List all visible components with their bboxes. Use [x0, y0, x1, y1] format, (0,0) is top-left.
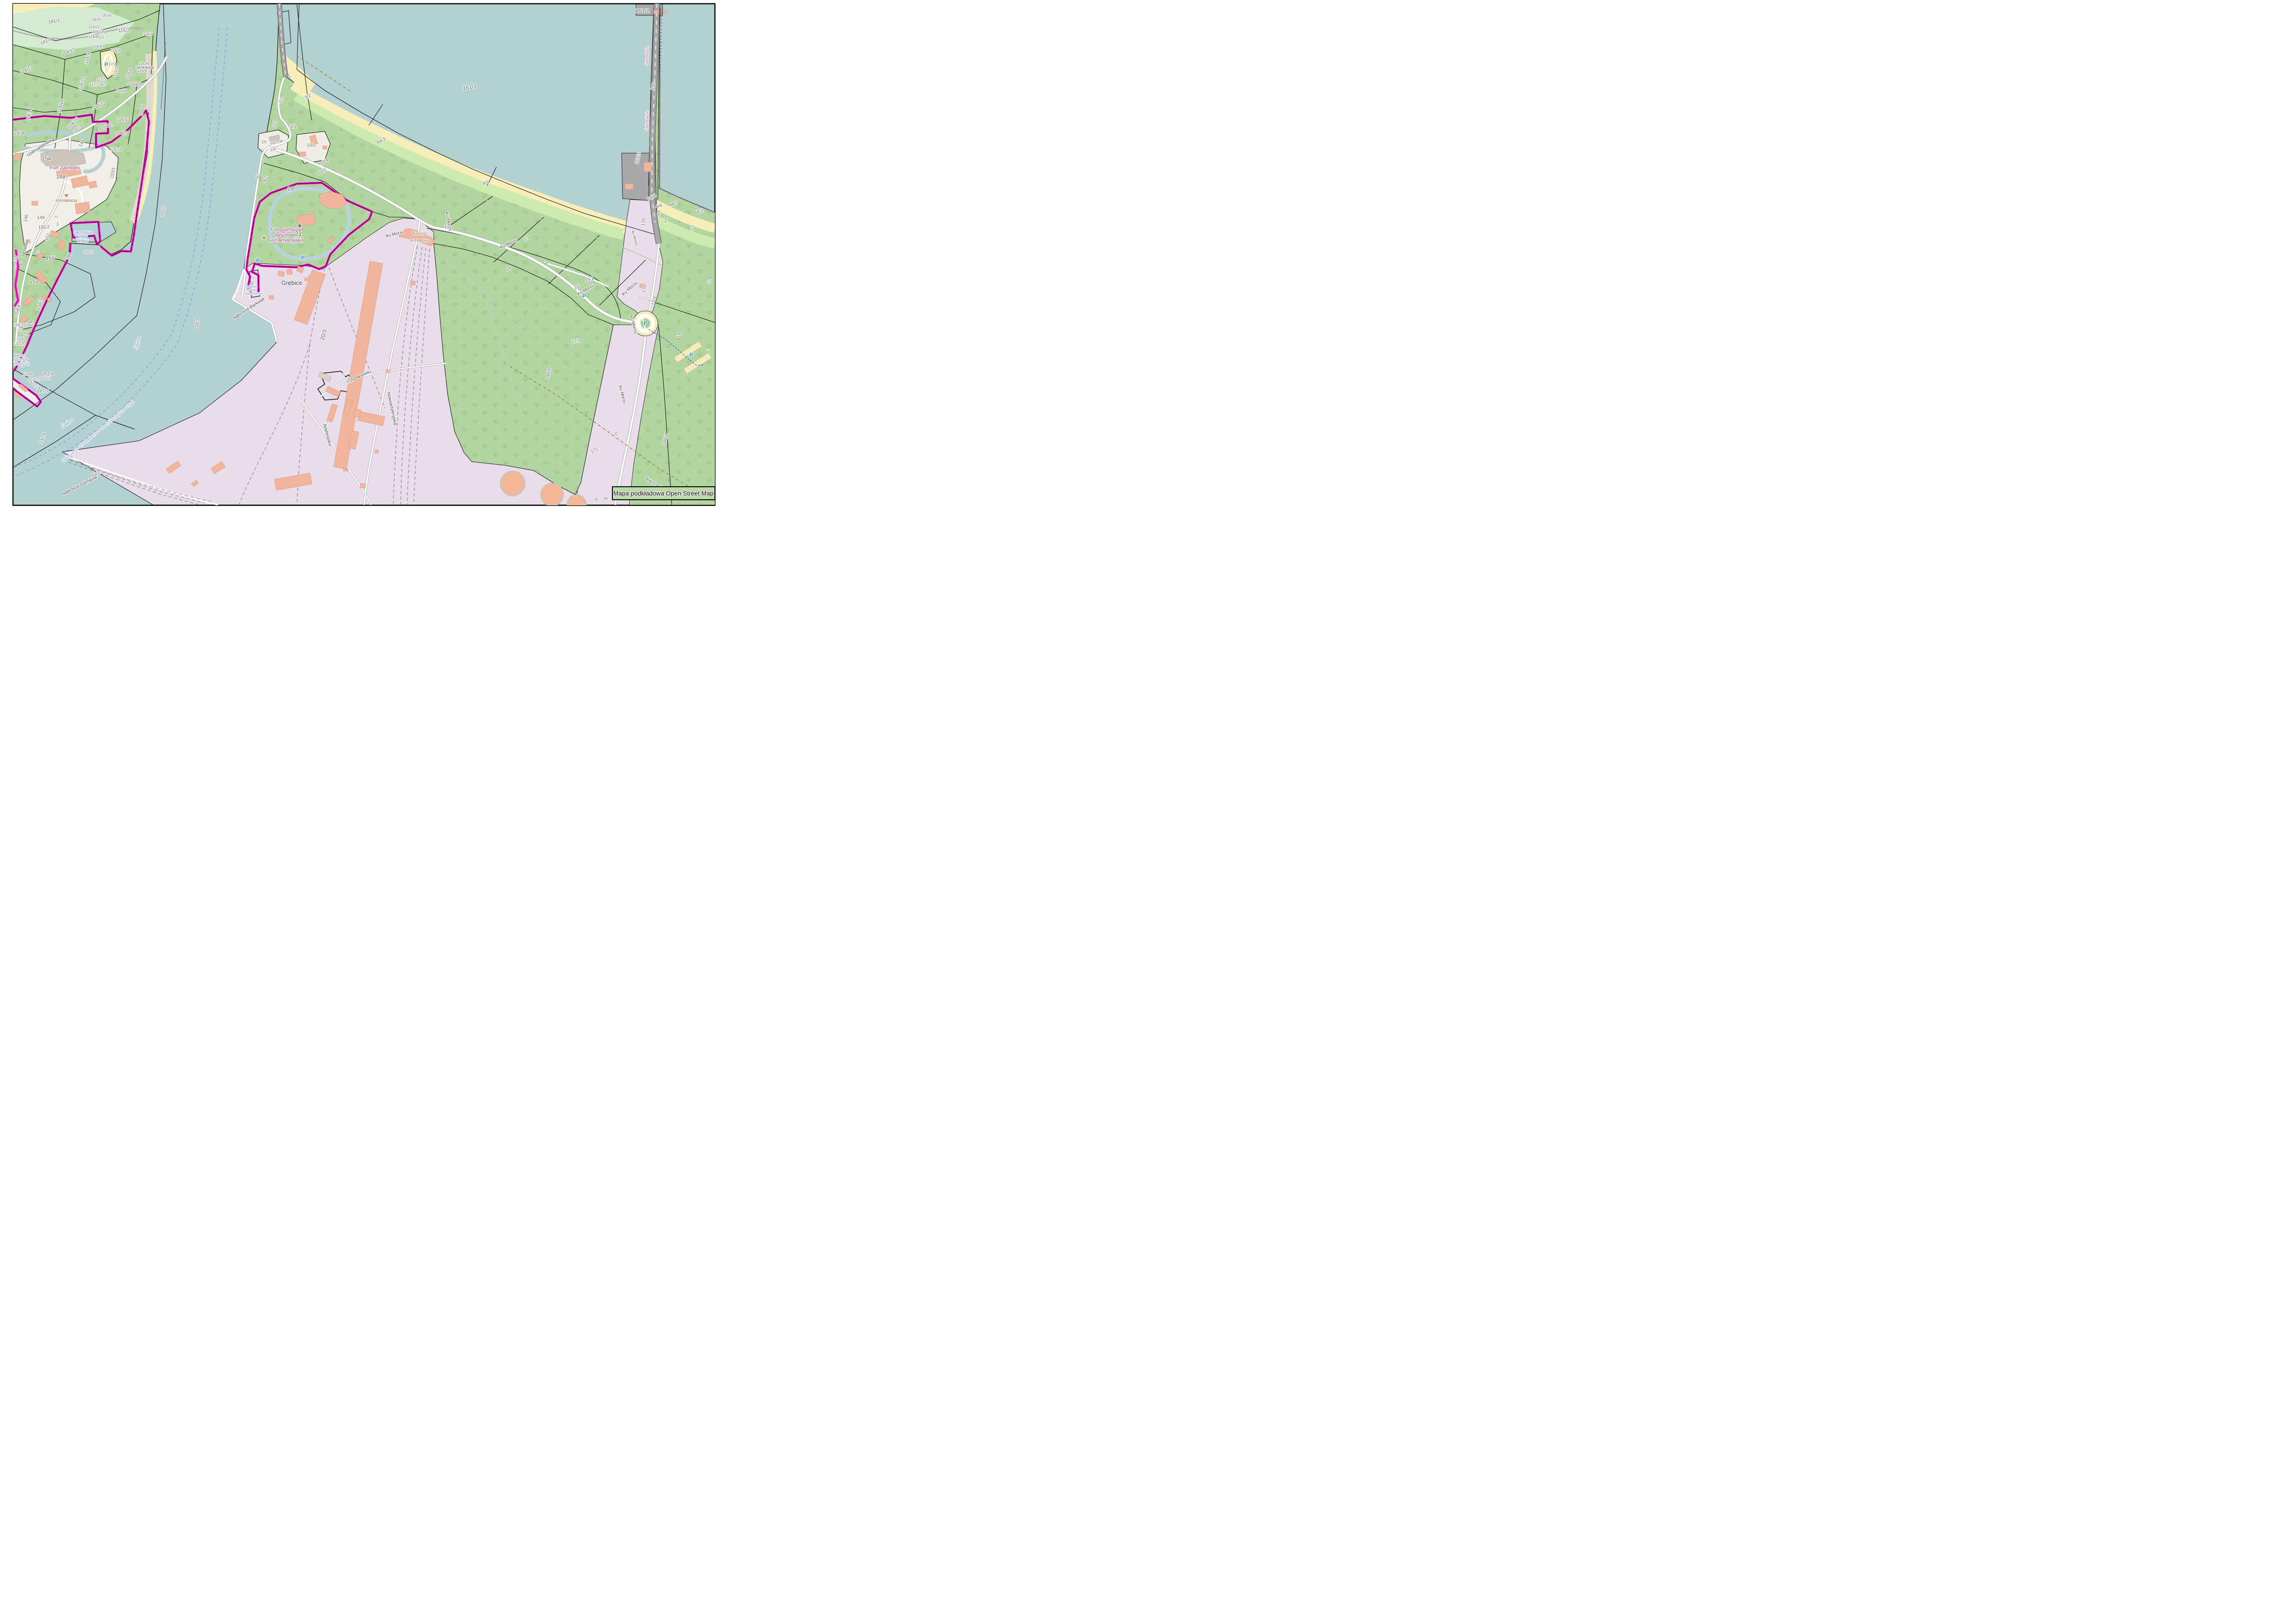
- map-label: Fort Zachodni: [50, 165, 80, 171]
- map-label: Latarnia: [245, 285, 257, 289]
- map-label: Świnoujście: [245, 291, 262, 296]
- map-label: 123/6: [23, 372, 33, 376]
- map-icon-Ⅲ: Ⅲ: [298, 224, 301, 228]
- map-label: 10/2: [307, 143, 316, 148]
- map-icon-Ψ: Ψ: [64, 193, 68, 199]
- map-label: 4: [37, 250, 39, 254]
- map-label: 60: [604, 496, 608, 501]
- map-label: 148: [56, 174, 65, 180]
- map-canvas[interactable]: 181/1181/6181/5114/22114/18114/8115116/2…: [0, 0, 719, 509]
- map-label: 150: [39, 225, 46, 230]
- map-icon-P: P: [104, 61, 108, 68]
- map-label: 114/22: [88, 25, 100, 29]
- map-label: 149: [37, 215, 45, 220]
- attribution-text: Mapa podkładowa Open Street Map: [613, 490, 714, 497]
- map-label: 116/14: [110, 147, 122, 152]
- map-label: 3/1: [290, 124, 296, 129]
- map-label: 161/2: [636, 7, 650, 14]
- map-label: 114/18: [92, 29, 104, 34]
- map-label: 114/38: [12, 131, 26, 136]
- map-label: 159/4: [16, 336, 26, 341]
- map-label: Wiatry: [77, 238, 89, 243]
- map-label: 155: [45, 255, 55, 261]
- map-icon-∗: ∗: [261, 234, 267, 241]
- map-label: 116/9: [137, 68, 147, 73]
- map-label: 181/6: [102, 13, 112, 18]
- map-label: 122/25: [13, 342, 25, 346]
- map-icon-←: ←: [706, 347, 710, 352]
- map-label: 59/23: [6, 345, 13, 356]
- map-label: 122/17: [39, 376, 51, 380]
- map-label: 116/8: [116, 89, 126, 93]
- map-icon-P: P: [301, 255, 305, 261]
- map-label: morska: [246, 289, 257, 292]
- map-label: 27: [347, 377, 353, 384]
- map-label: 116/4: [143, 32, 153, 36]
- map-label: 116/3: [111, 48, 121, 53]
- map-label: 116/10: [128, 82, 141, 87]
- map-label: 4a: [54, 214, 58, 219]
- map-label: Konstelacja: [56, 198, 77, 203]
- map-label: 202/2: [84, 250, 94, 254]
- map-label: 147/7: [37, 389, 48, 394]
- map-label: 8: [262, 159, 264, 164]
- map-label: Świnoujście: [644, 45, 649, 65]
- map-label: Brzegowa: [410, 238, 430, 243]
- map-label: Grębice: [281, 279, 302, 286]
- map-label: 116/13: [116, 117, 130, 122]
- map-label: 21: [295, 230, 302, 237]
- map-icon-P: P: [256, 258, 260, 264]
- map-icon-P: P: [643, 320, 647, 327]
- map-label: Fort Artyleryjski): [268, 238, 303, 243]
- map-label: 1: [56, 222, 59, 227]
- map-label: 19: [287, 186, 294, 192]
- map-label: Bateria: [412, 231, 427, 236]
- map-label: 181/5: [91, 17, 102, 22]
- map-label: Świnoujściu: [8, 361, 30, 366]
- attribution: Mapa podkładowa Open Street Map: [612, 487, 715, 500]
- map-label: 2/5: [261, 140, 267, 144]
- map-label: 16: [341, 373, 345, 377]
- map-label: 115: [98, 35, 104, 39]
- map-label: 151: [29, 278, 39, 284]
- map-label: Świnoujście: [644, 110, 649, 130]
- map-label: 114/20: [92, 44, 104, 49]
- map-icon-▪: ▪: [253, 276, 254, 280]
- map-label: 116/2: [118, 28, 130, 33]
- map-label: 154: [42, 155, 51, 162]
- map-label: 200/5: [115, 131, 127, 136]
- map-label: 159/5: [24, 323, 34, 328]
- map-label: 2: [47, 225, 50, 230]
- map-label: 26: [593, 497, 599, 503]
- map-label: 2/6: [270, 141, 276, 145]
- map-label: 116/7: [97, 82, 107, 87]
- map-label: 114/8: [89, 34, 98, 39]
- map-label: 7: [262, 149, 264, 154]
- map-label: 25: [613, 431, 619, 436]
- map-page: 181/1181/6181/5114/22114/18114/8115116/2…: [0, 0, 719, 509]
- map-label: 117/3: [96, 77, 106, 82]
- map-icon-i: i: [20, 262, 22, 267]
- map-icon-P: P: [582, 293, 586, 299]
- map-icon-P: P: [689, 352, 693, 358]
